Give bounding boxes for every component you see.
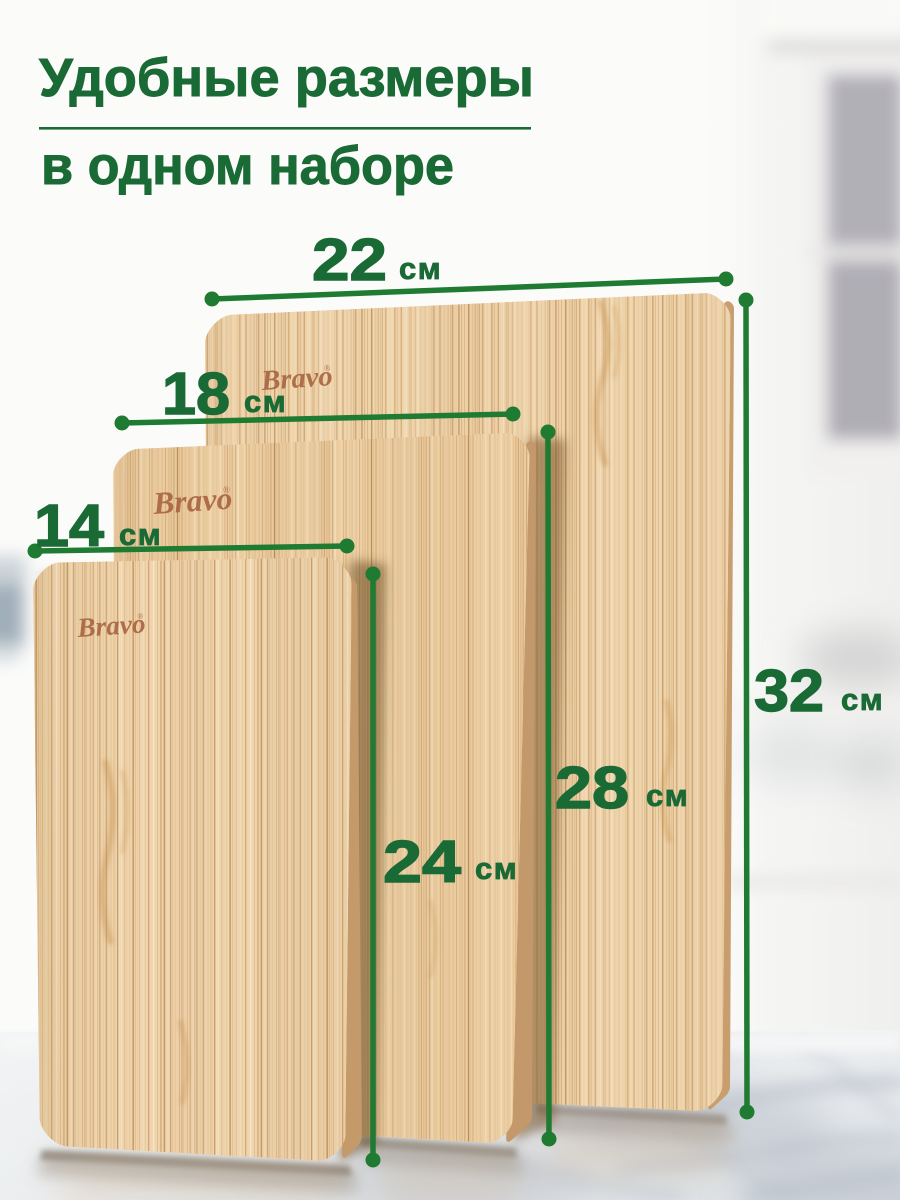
svg-text:см: см: [646, 778, 689, 813]
svg-text:Bravo: Bravo: [75, 608, 146, 643]
svg-text:см: см: [841, 682, 884, 717]
svg-text:см: см: [475, 851, 518, 886]
svg-text:®: ®: [223, 484, 231, 494]
svg-text:см: см: [119, 517, 162, 552]
svg-text:в одном наборе: в одном наборе: [41, 136, 454, 196]
svg-text:Удобные размеры: Удобные размеры: [39, 48, 534, 108]
svg-text:22: 22: [312, 227, 387, 293]
svg-text:24: 24: [383, 829, 461, 895]
svg-text:®: ®: [324, 363, 331, 372]
svg-text:®: ®: [137, 611, 144, 620]
svg-text:14: 14: [34, 493, 104, 559]
svg-text:32: 32: [754, 658, 824, 724]
svg-text:Bravo: Bravo: [151, 481, 233, 521]
svg-text:28: 28: [555, 755, 629, 821]
svg-text:18: 18: [162, 361, 230, 427]
svg-text:см: см: [399, 251, 442, 286]
svg-text:см: см: [244, 384, 287, 419]
